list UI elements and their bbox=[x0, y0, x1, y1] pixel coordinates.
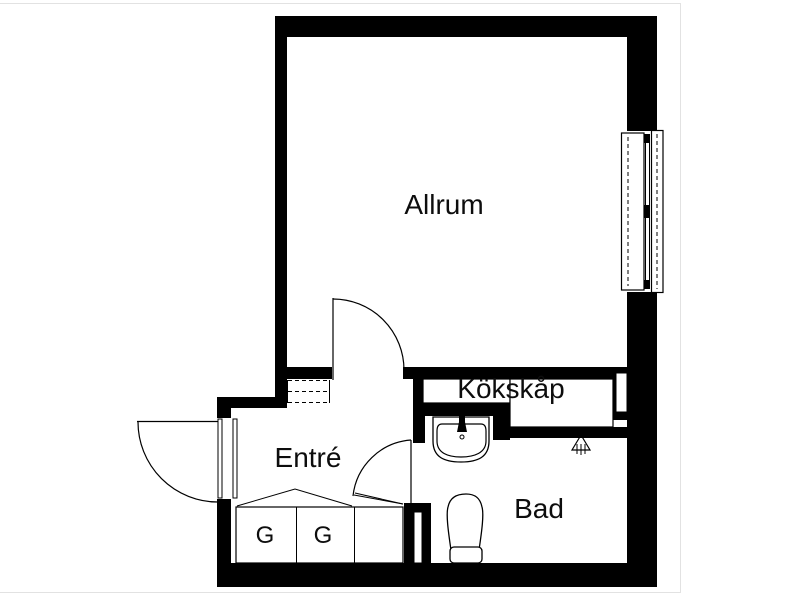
entry-door-swing-arc bbox=[138, 422, 218, 502]
entry-door-jamb-outer bbox=[218, 419, 222, 498]
toilet-tank bbox=[450, 547, 482, 563]
wall-shaft-slot-right bbox=[616, 373, 627, 412]
window-inner-frame bbox=[622, 133, 645, 290]
wall-block-right-of-sink bbox=[493, 416, 510, 440]
closet-label-g1: G bbox=[256, 522, 275, 549]
entry-door bbox=[137, 418, 238, 502]
wall-bottom bbox=[217, 563, 657, 587]
allrum-door bbox=[333, 298, 404, 380]
wall-allrum-south-west bbox=[275, 367, 332, 379]
bad-door-swing-arc bbox=[353, 440, 411, 496]
window-mullion-top bbox=[645, 134, 651, 143]
walls bbox=[217, 16, 657, 587]
room-label-entre: Entré bbox=[275, 442, 342, 473]
wall-right bbox=[627, 16, 657, 587]
wardrobe-rail-symbol bbox=[237, 489, 352, 506]
floorplan-drawing: Allrum Kökskåp Entré Bad G G bbox=[0, 0, 800, 600]
sink-drain bbox=[460, 435, 464, 439]
window bbox=[622, 131, 664, 293]
faint-frame bbox=[0, 4, 681, 593]
window-mullion-bottom bbox=[645, 280, 651, 289]
wall-shaft-slot-lower bbox=[414, 512, 422, 563]
closet-label-g2: G bbox=[314, 522, 333, 549]
overhead-cabinet-dashed bbox=[288, 380, 330, 403]
wall-left-allrum bbox=[275, 16, 287, 408]
room-label-allrum: Allrum bbox=[404, 189, 483, 220]
floorplan-image: Allrum Kökskåp Entré Bad G G bbox=[0, 0, 800, 600]
wall-entre-left-upper bbox=[217, 397, 231, 419]
room-label-bad: Bad bbox=[514, 493, 564, 524]
toilet bbox=[447, 494, 483, 563]
room-label-kokskap: Kökskåp bbox=[457, 373, 564, 404]
wall-under-kokskap-right bbox=[510, 427, 627, 438]
wall-top bbox=[275, 16, 657, 37]
window-handle bbox=[645, 205, 651, 218]
sink bbox=[433, 416, 489, 462]
toilet-bowl bbox=[447, 494, 483, 550]
wall-under-kokskap-left bbox=[413, 403, 510, 416]
entry-door-jamb-inner bbox=[233, 419, 237, 498]
wall-entre-left-lower bbox=[217, 498, 231, 563]
